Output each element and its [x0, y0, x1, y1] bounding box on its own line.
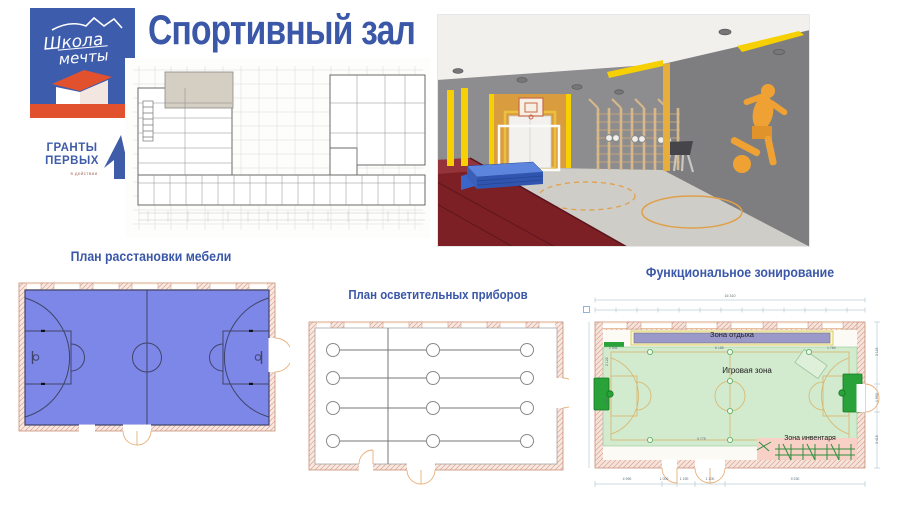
- grants-logo-text: ГРАНТЫ ПЕРВЫХ: [38, 142, 106, 168]
- gym-3d-render-image: [437, 14, 810, 247]
- page-title: Спортивный зал: [148, 6, 415, 54]
- zoning-plan: [587, 294, 900, 506]
- building-floor-plan: [125, 58, 430, 238]
- window-wall: [27, 283, 267, 290]
- zone-label-rest: Зона отдыха: [647, 330, 817, 339]
- building-floor-plan-drawing: [125, 58, 430, 238]
- dim-right-3: 3 415: [875, 435, 879, 444]
- lighting-plan-drawing: [307, 318, 569, 496]
- dim-inner-f: 9 775: [697, 437, 706, 441]
- dim-top-total: 16 310: [587, 294, 873, 298]
- dim-inner-d: 2 122: [605, 357, 609, 366]
- dim-bottom-4: 1 100: [697, 477, 723, 481]
- gym-3d-render: [437, 14, 810, 247]
- zoning-label: Функциональное зонирование: [608, 264, 872, 280]
- lighting-plan-label: План осветительных приборов: [323, 287, 554, 302]
- dim-inner-c: 1 760: [827, 346, 836, 350]
- furniture-plan-drawing: [15, 281, 290, 449]
- lighting-plan: [307, 318, 569, 496]
- zone-label-inventory: Зона инвентаря: [765, 435, 855, 442]
- school-dream-logo: Школа мечты: [30, 8, 135, 118]
- grants-pervykh-logo: ГРАНТЫ ПЕРВЫХ в действии: [38, 134, 133, 182]
- grants-line1: ГРАНТЫ: [38, 142, 106, 155]
- grants-tagline: в действии: [56, 171, 112, 176]
- basketball-backboard: [519, 98, 543, 119]
- dim-bottom-5: 9 230: [765, 477, 825, 481]
- dim-right-2: 1 900: [875, 393, 879, 402]
- basketball-court-plan: [15, 281, 290, 449]
- zone-label-play: Игровая зона: [682, 366, 812, 375]
- dim-bottom-1: 4 990: [607, 477, 647, 481]
- dim-inner-b: 6 185: [715, 346, 724, 350]
- grants-line2: ПЕРВЫХ: [38, 155, 106, 168]
- furniture-plan-label: План расстановки мебели: [31, 248, 270, 264]
- school-dream-logo-text: Школа мечты: [43, 31, 110, 69]
- dim-inner-a: 2 541: [609, 346, 618, 350]
- dim-inner-e: 2 645: [605, 397, 609, 406]
- dim-right-1: 3 115: [875, 348, 879, 357]
- slide-canvas: Школа мечты ГРАНТЫ ПЕРВЫХ в действии Спо…: [0, 0, 900, 508]
- stairs-symbol: [143, 101, 153, 141]
- dim-bottom-2: 1 000: [653, 477, 675, 481]
- window-wall: [603, 322, 857, 329]
- dim-bottom-3: 1 190: [673, 477, 695, 481]
- zoning-plan-drawing: Зона отдыха Игровая зона Зона инвентаря …: [587, 294, 900, 506]
